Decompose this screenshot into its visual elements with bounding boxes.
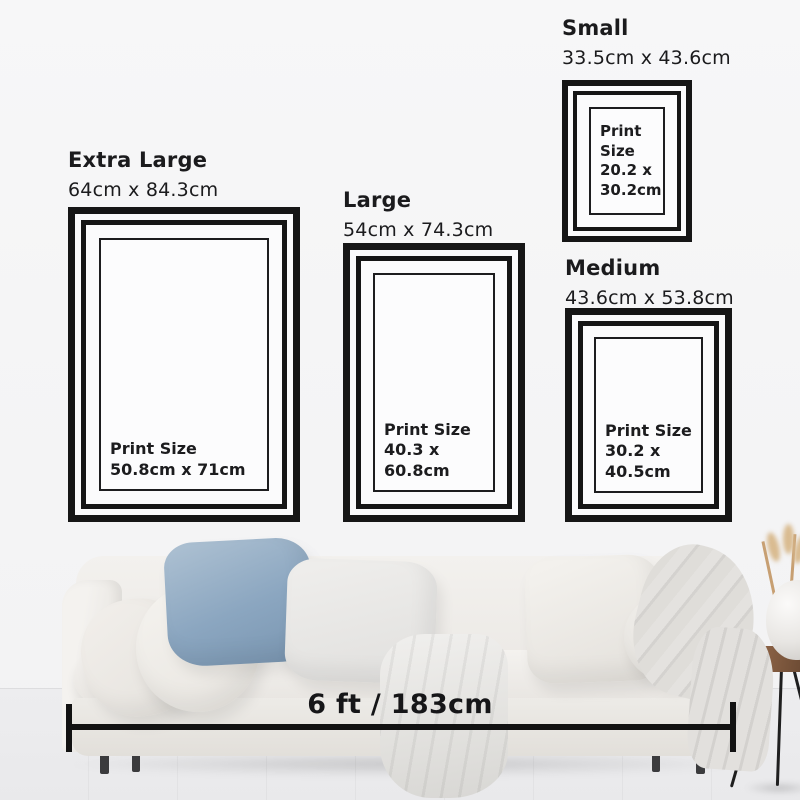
- sofa-width-label: 6 ft / 183cm: [250, 689, 550, 720]
- print-size-text: Print Size 30.2 x 40.5cm: [605, 421, 701, 483]
- measurement-line: [68, 724, 734, 730]
- frame-inner-border: Print Size 40.3 x 60.8cm: [356, 256, 512, 509]
- frame-name: Small: [562, 16, 731, 40]
- print-size-value: 30.2 x 40.5cm: [605, 441, 701, 483]
- print-size-text: Print Size 20.2 x 30.2cm: [600, 122, 663, 200]
- print-area: Print Size 40.3 x 60.8cm: [373, 273, 495, 492]
- frame-name: Large: [343, 188, 493, 212]
- frame-inner-border: Print Size 30.2 x 40.5cm: [578, 321, 719, 509]
- frame-mat: Print Size 30.2 x 40.5cm: [583, 326, 714, 504]
- frame-medium: Print Size 30.2 x 40.5cm: [565, 308, 732, 522]
- frame-large: Print Size 40.3 x 60.8cm: [343, 243, 525, 522]
- frame-name: Extra Large: [68, 148, 218, 172]
- print-size-label: Print Size: [600, 122, 663, 161]
- frame-mat: Print Size 20.2 x 30.2cm: [577, 95, 677, 227]
- label-medium: Medium 43.6cm x 53.8cm: [565, 256, 734, 309]
- frame-mat: Print Size 50.8cm x 71cm: [86, 225, 282, 504]
- frame-extra-large: Print Size 50.8cm x 71cm: [68, 207, 300, 522]
- print-size-text: Print Size 40.3 x 60.8cm: [384, 420, 493, 482]
- print-size-text: Print Size 50.8cm x 71cm: [110, 439, 246, 481]
- frame-small: Print Size 20.2 x 30.2cm: [562, 80, 692, 242]
- label-extra-large: Extra Large 64cm x 84.3cm: [68, 148, 218, 201]
- frame-mat: Print Size 40.3 x 60.8cm: [361, 261, 507, 504]
- frame-inner-border: Print Size 20.2 x 30.2cm: [573, 91, 681, 231]
- print-area: Print Size 30.2 x 40.5cm: [594, 337, 703, 493]
- frame-dimensions: 43.6cm x 53.8cm: [565, 287, 734, 309]
- size-guide-scene: Extra Large 64cm x 84.3cm Print Size 50.…: [0, 0, 800, 800]
- label-large: Large 54cm x 74.3cm: [343, 188, 493, 241]
- print-size-value: 40.3 x 60.8cm: [384, 440, 493, 482]
- frame-name: Medium: [565, 256, 734, 280]
- print-size-value: 20.2 x 30.2cm: [600, 161, 663, 200]
- print-size-label: Print Size: [384, 420, 493, 441]
- print-size-value: 50.8cm x 71cm: [110, 460, 246, 481]
- frame-inner-border: Print Size 50.8cm x 71cm: [81, 220, 287, 509]
- frame-dimensions: 33.5cm x 43.6cm: [562, 47, 731, 69]
- print-area: Print Size 50.8cm x 71cm: [99, 238, 269, 491]
- frame-dimensions: 64cm x 84.3cm: [68, 179, 218, 201]
- print-size-label: Print Size: [110, 439, 246, 460]
- pampas-plume: [783, 524, 794, 554]
- measurement-endcap-left: [66, 704, 72, 752]
- print-size-label: Print Size: [605, 421, 701, 442]
- measurement-endcap-right: [730, 702, 736, 752]
- frame-dimensions: 54cm x 74.3cm: [343, 219, 493, 241]
- print-area: Print Size 20.2 x 30.2cm: [589, 107, 665, 215]
- label-small: Small 33.5cm x 43.6cm: [562, 16, 731, 69]
